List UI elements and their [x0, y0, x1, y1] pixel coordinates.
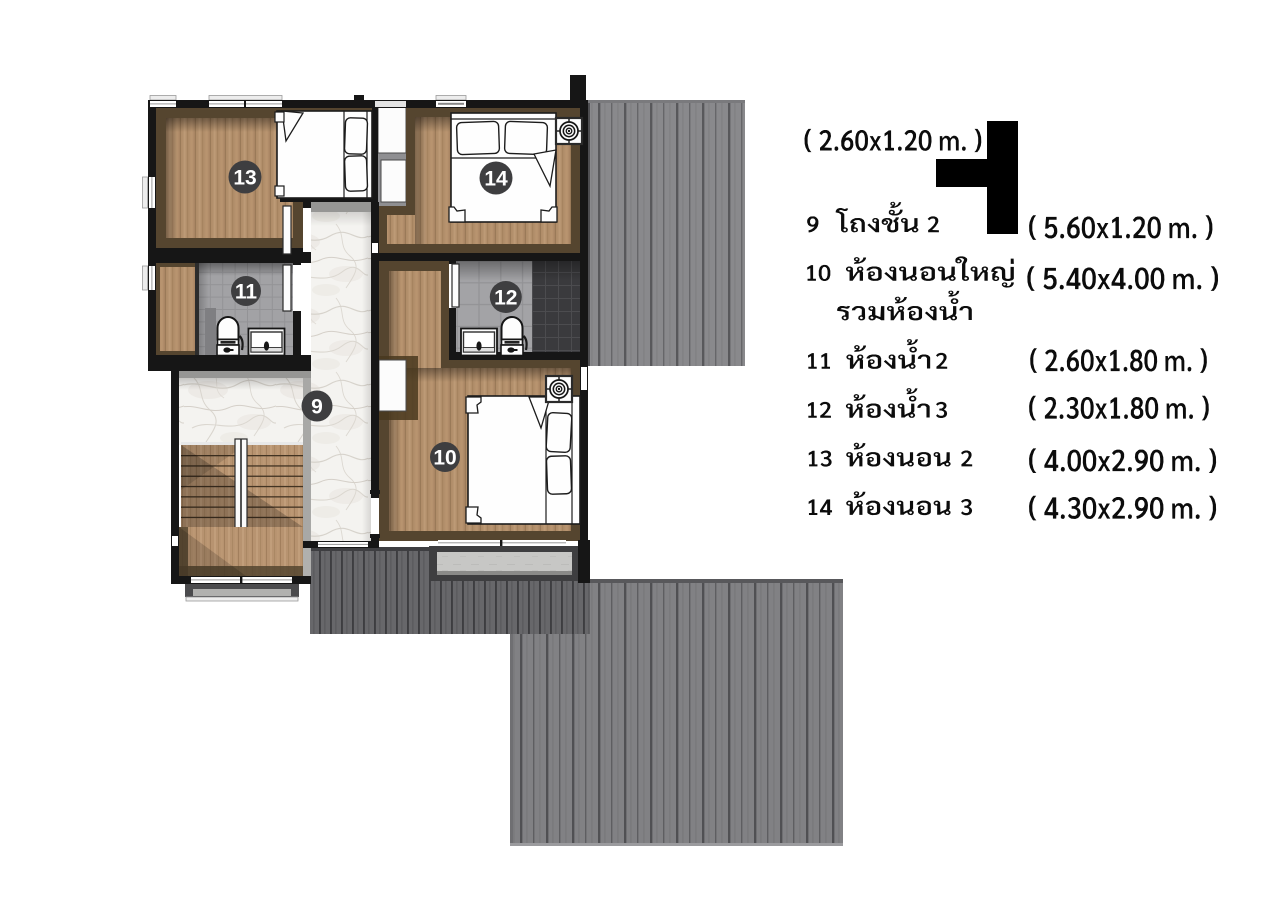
svg-text:9: 9 — [311, 395, 323, 418]
svg-text:10: 10 — [433, 446, 456, 469]
svg-text:11: 11 — [235, 280, 258, 303]
svg-text:14: 14 — [484, 167, 508, 190]
svg-text:13: 13 — [233, 166, 256, 189]
svg-text:12: 12 — [494, 286, 517, 309]
